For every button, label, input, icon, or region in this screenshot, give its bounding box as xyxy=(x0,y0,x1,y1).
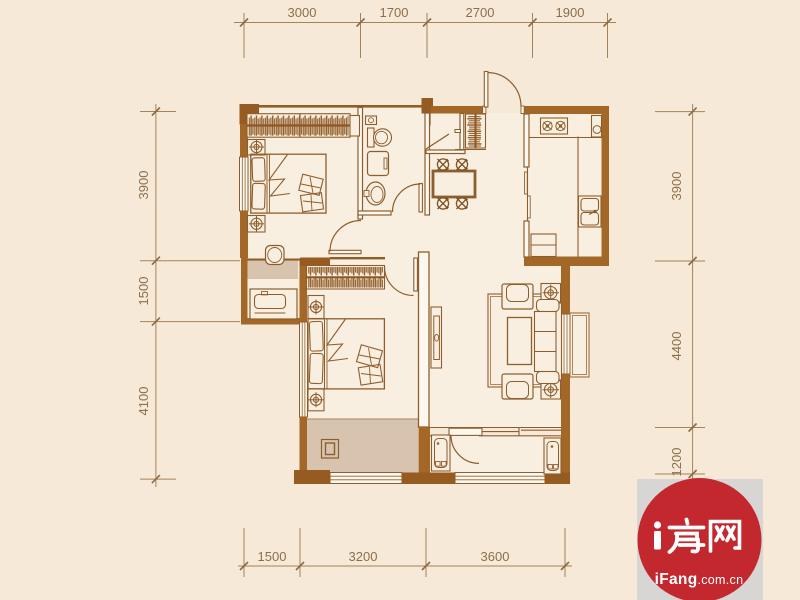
svg-text:1200: 1200 xyxy=(669,448,684,477)
svg-text:3600: 3600 xyxy=(481,549,510,564)
svg-text:1500: 1500 xyxy=(258,549,287,564)
svg-text:4100: 4100 xyxy=(136,387,151,416)
svg-text:3900: 3900 xyxy=(136,171,151,200)
svg-text:3200: 3200 xyxy=(349,549,378,564)
svg-text:1700: 1700 xyxy=(380,5,409,20)
svg-text:3900: 3900 xyxy=(669,172,684,201)
svg-text:4400: 4400 xyxy=(669,332,684,361)
svg-text:1900: 1900 xyxy=(556,5,585,20)
svg-text:iFang.com.cn: iFang.com.cn xyxy=(655,571,744,588)
svg-text:3000: 3000 xyxy=(288,5,317,20)
svg-text:1500: 1500 xyxy=(136,277,151,306)
svg-text:2700: 2700 xyxy=(466,5,495,20)
